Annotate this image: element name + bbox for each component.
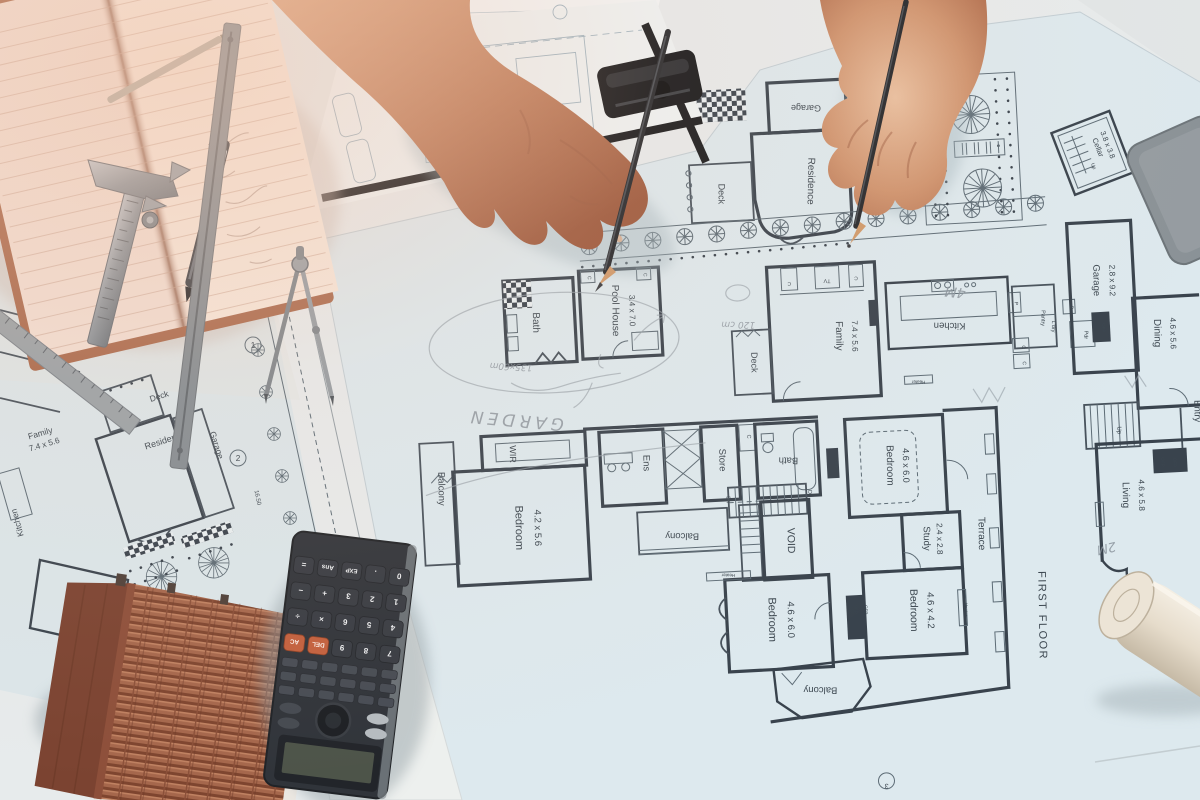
photo-architect-blueprints: Deck Residence Garage Family 7.4 x 5.6 K…: [0, 0, 1200, 800]
light-overlay: [0, 0, 1200, 800]
scene: Deck Residence Garage Family 7.4 x 5.6 K…: [0, 0, 1200, 800]
